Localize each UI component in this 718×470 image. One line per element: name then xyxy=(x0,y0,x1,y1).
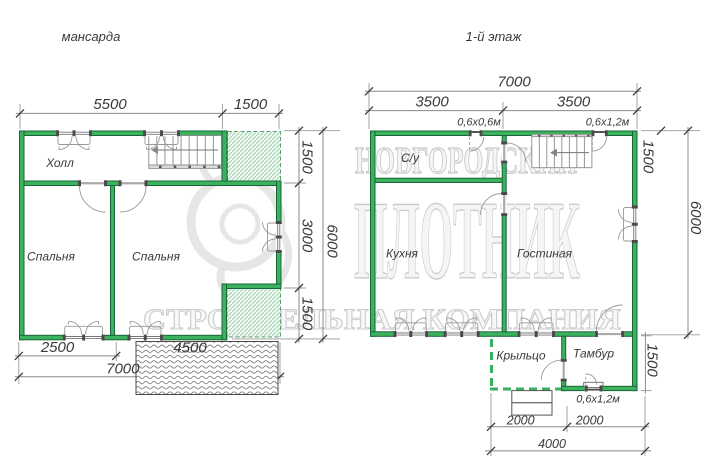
svg-text:6000: 6000 xyxy=(324,224,341,258)
svg-text:7000: 7000 xyxy=(106,361,140,378)
svg-text:Гостиная: Гостиная xyxy=(517,247,572,261)
svg-text:1500: 1500 xyxy=(640,140,657,174)
svg-text:2500: 2500 xyxy=(40,339,75,356)
svg-text:Спальня: Спальня xyxy=(27,250,75,264)
svg-text:0,6х1,2м: 0,6х1,2м xyxy=(586,117,630,129)
svg-text:Спальня: Спальня xyxy=(132,250,180,264)
svg-text:Тамбур: Тамбур xyxy=(573,347,614,361)
svg-text:Крыльцо: Крыльцо xyxy=(496,349,546,363)
svg-text:1500: 1500 xyxy=(234,96,268,113)
svg-text:7000: 7000 xyxy=(497,74,531,91)
svg-text:0,6х0,6м: 0,6х0,6м xyxy=(457,117,501,129)
svg-text:5500: 5500 xyxy=(93,96,127,113)
svg-text:2000: 2000 xyxy=(575,414,604,428)
svg-text:ПЛОТНИК: ПЛОТНИК xyxy=(354,179,580,303)
svg-text:1500: 1500 xyxy=(644,343,661,377)
svg-text:Холл: Холл xyxy=(45,156,74,170)
svg-text:6000: 6000 xyxy=(687,201,704,235)
svg-text:3000: 3000 xyxy=(299,219,316,253)
svg-text:1500: 1500 xyxy=(299,297,316,331)
svg-text:Кухня: Кухня xyxy=(386,247,419,261)
svg-text:СТРОИТЕЛЬНАЯ КОМПАНИЯ: СТРОИТЕЛЬНАЯ КОМПАНИЯ xyxy=(143,303,621,336)
svg-text:2000: 2000 xyxy=(506,414,535,428)
svg-text:0,6х1,2м: 0,6х1,2м xyxy=(576,394,620,406)
svg-text:4000: 4000 xyxy=(538,437,566,451)
svg-text:4500: 4500 xyxy=(173,340,207,357)
svg-text:С/у: С/у xyxy=(401,151,420,165)
svg-text:3500: 3500 xyxy=(557,94,591,111)
svg-text:3500: 3500 xyxy=(415,94,449,111)
svg-text:мансарда: мансарда xyxy=(62,29,121,44)
svg-text:1-й этаж: 1-й этаж xyxy=(466,29,523,44)
svg-text:1500: 1500 xyxy=(299,140,316,174)
